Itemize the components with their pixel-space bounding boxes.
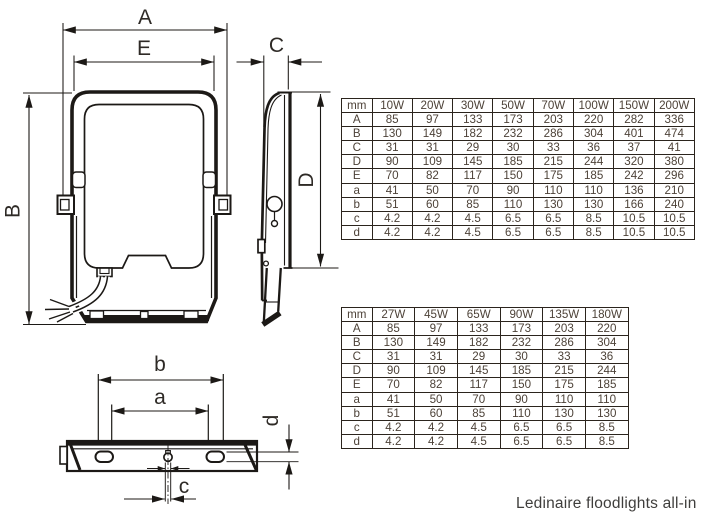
- value-cell: 29: [453, 141, 493, 155]
- value-cell: 6.5: [543, 434, 586, 448]
- value-cell: 304: [573, 127, 613, 141]
- value-cell: 380: [654, 155, 694, 169]
- value-cell: 130: [533, 197, 573, 211]
- value-cell: 51: [372, 197, 412, 211]
- value-cell: 215: [533, 155, 573, 169]
- value-cell: 109: [415, 364, 458, 378]
- wattage-header-cell: 135W: [543, 308, 586, 322]
- value-cell: 4.5: [457, 434, 500, 448]
- table-row: C3131293033363741: [342, 141, 695, 155]
- table-row: B130149182232286304401474: [342, 127, 695, 141]
- value-cell: 203: [543, 322, 586, 336]
- value-cell: 4.5: [453, 211, 493, 225]
- value-cell: 90: [493, 183, 533, 197]
- value-cell: 220: [585, 322, 628, 336]
- value-cell: 242: [614, 169, 654, 183]
- side-knob-small: [272, 221, 278, 227]
- dimension-label-cell: A: [342, 322, 373, 336]
- dimension-label-cell: b: [342, 197, 373, 211]
- value-cell: 286: [533, 127, 573, 141]
- value-cell: 149: [412, 127, 452, 141]
- table-row: a41507090110110: [342, 392, 629, 406]
- value-cell: 10.5: [614, 225, 654, 239]
- value-cell: 8.5: [573, 211, 613, 225]
- value-cell: 85: [453, 197, 493, 211]
- side-screw-hole: [264, 261, 269, 266]
- wattage-header-cell: 180W: [585, 308, 628, 322]
- value-cell: 6.5: [500, 420, 543, 434]
- table-row: b516085110130130: [342, 406, 629, 420]
- value-cell: 110: [500, 406, 543, 420]
- value-cell: 4.2: [372, 225, 412, 239]
- value-cell: 6.5: [500, 434, 543, 448]
- value-cell: 304: [585, 336, 628, 350]
- value-cell: 110: [585, 392, 628, 406]
- value-cell: 210: [654, 183, 694, 197]
- value-cell: 130: [585, 406, 628, 420]
- value-cell: 109: [412, 155, 452, 169]
- dimension-label-cell: B: [342, 336, 373, 350]
- value-cell: 117: [457, 378, 500, 392]
- value-cell: 36: [573, 141, 613, 155]
- label-E: E: [137, 37, 151, 60]
- wattage-header-cell: 20W: [412, 99, 452, 113]
- wattage-header-cell: 27W: [372, 308, 415, 322]
- value-cell: 41: [654, 141, 694, 155]
- dimension-label-cell: B: [342, 127, 373, 141]
- table-row: b516085110130130166240: [342, 197, 695, 211]
- value-cell: 97: [415, 322, 458, 336]
- value-cell: 60: [412, 197, 452, 211]
- value-cell: 336: [654, 113, 694, 127]
- table-row: D90109145185215244: [342, 364, 629, 378]
- dimension-label-cell: c: [342, 420, 373, 434]
- dimension-label-cell: a: [342, 183, 373, 197]
- dimension-label-cell: A: [342, 113, 373, 127]
- value-cell: 6.5: [533, 211, 573, 225]
- value-cell: 82: [412, 169, 452, 183]
- dimension-label-cell: C: [342, 141, 373, 155]
- value-cell: 37: [614, 141, 654, 155]
- label-B: B: [2, 204, 25, 218]
- value-cell: 70: [372, 378, 415, 392]
- value-cell: 173: [493, 113, 533, 127]
- cable-gland: [97, 268, 112, 277]
- value-cell: 31: [372, 141, 412, 155]
- value-cell: 232: [493, 127, 533, 141]
- wattage-header-cell: 50W: [493, 99, 533, 113]
- mount-slot-left: [96, 452, 114, 463]
- table-row: d4.24.24.56.56.58.5: [342, 434, 629, 448]
- value-cell: 244: [573, 155, 613, 169]
- value-cell: 175: [533, 169, 573, 183]
- wattage-header-cell: 30W: [453, 99, 493, 113]
- value-cell: 30: [493, 141, 533, 155]
- wattage-header-cell: 90W: [500, 308, 543, 322]
- value-cell: 182: [457, 336, 500, 350]
- value-cell: 97: [412, 113, 452, 127]
- wattage-header-cell: 150W: [614, 99, 654, 113]
- value-cell: 145: [457, 364, 500, 378]
- wattage-header-cell: 70W: [533, 99, 573, 113]
- value-cell: 4.2: [415, 420, 458, 434]
- table-row: E7082117150175185242296: [342, 169, 695, 183]
- dimension-label-cell: c: [342, 211, 373, 225]
- table-row: A8597133173203220282336: [342, 113, 695, 127]
- value-cell: 31: [372, 350, 415, 364]
- value-cell: 232: [500, 336, 543, 350]
- value-cell: 117: [453, 169, 493, 183]
- dimension-label-cell: b: [342, 406, 373, 420]
- value-cell: 130: [372, 127, 412, 141]
- dimension-label-cell: a: [342, 392, 373, 406]
- value-cell: 6.5: [543, 420, 586, 434]
- dimension-label-cell: D: [342, 155, 373, 169]
- value-cell: 31: [412, 141, 452, 155]
- cable-wire-ends: [45, 300, 73, 323]
- value-cell: 70: [457, 392, 500, 406]
- value-cell: 175: [543, 378, 586, 392]
- value-cell: 8.5: [585, 420, 628, 434]
- value-cell: 130: [372, 336, 415, 350]
- front-view: [45, 92, 231, 322]
- label-d: d: [260, 415, 283, 427]
- value-cell: 10.5: [654, 225, 694, 239]
- dimension-label-cell: d: [342, 434, 373, 448]
- table-row: c4.24.24.56.56.58.5: [342, 420, 629, 434]
- value-cell: 6.5: [533, 225, 573, 239]
- figure-caption: Ledinaire floodlights all-in: [516, 495, 697, 513]
- value-cell: 185: [500, 364, 543, 378]
- value-cell: 150: [500, 378, 543, 392]
- dimension-label-cell: E: [342, 169, 373, 183]
- table-row: A8597133173203220: [342, 322, 629, 336]
- lens-clip-left: [73, 172, 86, 188]
- value-cell: 85: [372, 113, 412, 127]
- value-cell: 110: [533, 183, 573, 197]
- value-cell: 130: [573, 197, 613, 211]
- value-cell: 166: [614, 197, 654, 211]
- value-cell: 136: [614, 183, 654, 197]
- lens-face-outline: [85, 105, 204, 269]
- value-cell: 4.2: [372, 211, 412, 225]
- value-cell: 10.5: [614, 211, 654, 225]
- value-cell: 150: [493, 169, 533, 183]
- value-cell: 41: [372, 392, 415, 406]
- value-cell: 203: [533, 113, 573, 127]
- value-cell: 90: [372, 155, 412, 169]
- wattage-header-cell: 100W: [573, 99, 613, 113]
- side-knob-large: [267, 197, 282, 212]
- side-extension-lines: [264, 56, 339, 269]
- dimensions-table-8col: mm10W20W30W50W70W100W150W200WA8597133173…: [341, 98, 695, 240]
- unit-header-cell: mm: [342, 99, 373, 113]
- wattage-header-cell: 65W: [457, 308, 500, 322]
- value-cell: 110: [573, 183, 613, 197]
- table-row: a41507090110110136210: [342, 183, 695, 197]
- table-row: B130149182232286304: [342, 336, 629, 350]
- side-bracket-foot: [263, 313, 280, 325]
- bottom-dimensions: b a c d: [98, 353, 298, 502]
- table-row: C313129303336: [342, 350, 629, 364]
- wattage-header-cell: 10W: [372, 99, 412, 113]
- value-cell: 296: [654, 169, 694, 183]
- value-cell: 82: [415, 378, 458, 392]
- value-cell: 6.5: [493, 211, 533, 225]
- dimension-label-cell: E: [342, 378, 373, 392]
- dimension-label-cell: C: [342, 350, 373, 364]
- value-cell: 4.2: [372, 434, 415, 448]
- value-cell: 4.2: [412, 225, 452, 239]
- side-latch-block: [258, 240, 265, 253]
- wattage-header-cell: 45W: [415, 308, 458, 322]
- value-cell: 110: [493, 197, 533, 211]
- label-A: A: [138, 6, 152, 29]
- unit-header-cell: mm: [342, 308, 373, 322]
- value-cell: 4.5: [457, 420, 500, 434]
- value-cell: 70: [453, 183, 493, 197]
- value-cell: 220: [573, 113, 613, 127]
- value-cell: 60: [415, 406, 458, 420]
- value-cell: 51: [372, 406, 415, 420]
- value-cell: 36: [585, 350, 628, 364]
- value-cell: 4.2: [372, 420, 415, 434]
- side-dimensions: C D: [237, 34, 339, 268]
- value-cell: 50: [415, 392, 458, 406]
- value-cell: 133: [453, 113, 493, 127]
- value-cell: 244: [585, 364, 628, 378]
- value-cell: 215: [543, 364, 586, 378]
- value-cell: 173: [500, 322, 543, 336]
- value-cell: 30: [500, 350, 543, 364]
- value-cell: 401: [614, 127, 654, 141]
- label-C: C: [269, 34, 284, 57]
- dimension-label-cell: D: [342, 364, 373, 378]
- label-D: D: [295, 172, 318, 187]
- label-b: b: [154, 353, 166, 376]
- value-cell: 4.2: [412, 211, 452, 225]
- table-row: d4.24.24.56.56.58.510.510.5: [342, 225, 695, 239]
- value-cell: 31: [415, 350, 458, 364]
- datasheet-page: A E B C D: [0, 0, 709, 520]
- value-cell: 50: [412, 183, 452, 197]
- value-cell: 6.5: [493, 225, 533, 239]
- value-cell: 182: [453, 127, 493, 141]
- mount-slot-right: [207, 452, 225, 463]
- side-view: [258, 93, 293, 325]
- lens-clip-right: [203, 172, 216, 188]
- dimensions-table-6col: mm27W45W65W90W135W180WA8597133173203220B…: [341, 307, 629, 449]
- label-a: a: [154, 386, 166, 409]
- value-cell: 110: [543, 392, 586, 406]
- value-cell: 90: [372, 364, 415, 378]
- value-cell: 90: [500, 392, 543, 406]
- table-row: E7082117150175185: [342, 378, 629, 392]
- value-cell: 41: [372, 183, 412, 197]
- value-cell: 85: [372, 322, 415, 336]
- value-cell: 282: [614, 113, 654, 127]
- value-cell: 70: [372, 169, 412, 183]
- value-cell: 85: [457, 406, 500, 420]
- dimension-label-cell: d: [342, 225, 373, 239]
- value-cell: 8.5: [573, 225, 613, 239]
- value-cell: 8.5: [585, 434, 628, 448]
- value-cell: 149: [415, 336, 458, 350]
- table-header-row: mm10W20W30W50W70W100W150W200W: [342, 99, 695, 113]
- value-cell: 286: [543, 336, 586, 350]
- wattage-header-cell: 200W: [654, 99, 694, 113]
- value-cell: 33: [543, 350, 586, 364]
- value-cell: 29: [457, 350, 500, 364]
- table-header-row: mm27W45W65W90W135W180W: [342, 308, 629, 322]
- value-cell: 185: [585, 378, 628, 392]
- value-cell: 185: [493, 155, 533, 169]
- value-cell: 474: [654, 127, 694, 141]
- value-cell: 10.5: [654, 211, 694, 225]
- value-cell: 145: [453, 155, 493, 169]
- value-cell: 133: [457, 322, 500, 336]
- value-cell: 240: [654, 197, 694, 211]
- table-row: D90109145185215244320380: [342, 155, 695, 169]
- value-cell: 130: [543, 406, 586, 420]
- value-cell: 320: [614, 155, 654, 169]
- value-cell: 33: [533, 141, 573, 155]
- value-cell: 185: [573, 169, 613, 183]
- bracket-left-lug: [60, 447, 67, 465]
- value-cell: 4.2: [415, 434, 458, 448]
- label-c: c: [179, 475, 190, 498]
- value-cell: 4.5: [453, 225, 493, 239]
- table-row: c4.24.24.56.56.58.510.510.5: [342, 211, 695, 225]
